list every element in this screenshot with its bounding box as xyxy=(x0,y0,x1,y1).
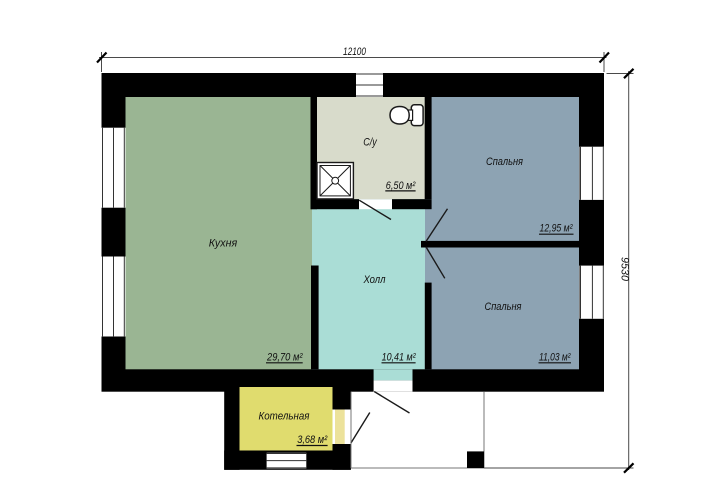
svg-text:29,70 м²: 29,70 м² xyxy=(266,351,303,363)
svg-text:11,03 м²: 11,03 м² xyxy=(539,352,571,364)
svg-text:10,41 м²: 10,41 м² xyxy=(382,352,416,364)
svg-text:Кухня: Кухня xyxy=(209,238,238,250)
svg-text:6,50 м²: 6,50 м² xyxy=(386,180,416,192)
svg-text:Спальня: Спальня xyxy=(485,301,522,313)
svg-text:Котельная: Котельная xyxy=(259,411,310,423)
svg-text:С/у: С/у xyxy=(363,137,378,149)
svg-text:12,95 м²: 12,95 м² xyxy=(540,223,573,235)
svg-text:9530: 9530 xyxy=(618,257,630,282)
svg-text:3,68 м²: 3,68 м² xyxy=(297,434,327,446)
svg-text:Холл: Холл xyxy=(363,274,386,286)
svg-text:Спальня: Спальня xyxy=(486,156,523,168)
svg-text:12100: 12100 xyxy=(343,46,367,58)
